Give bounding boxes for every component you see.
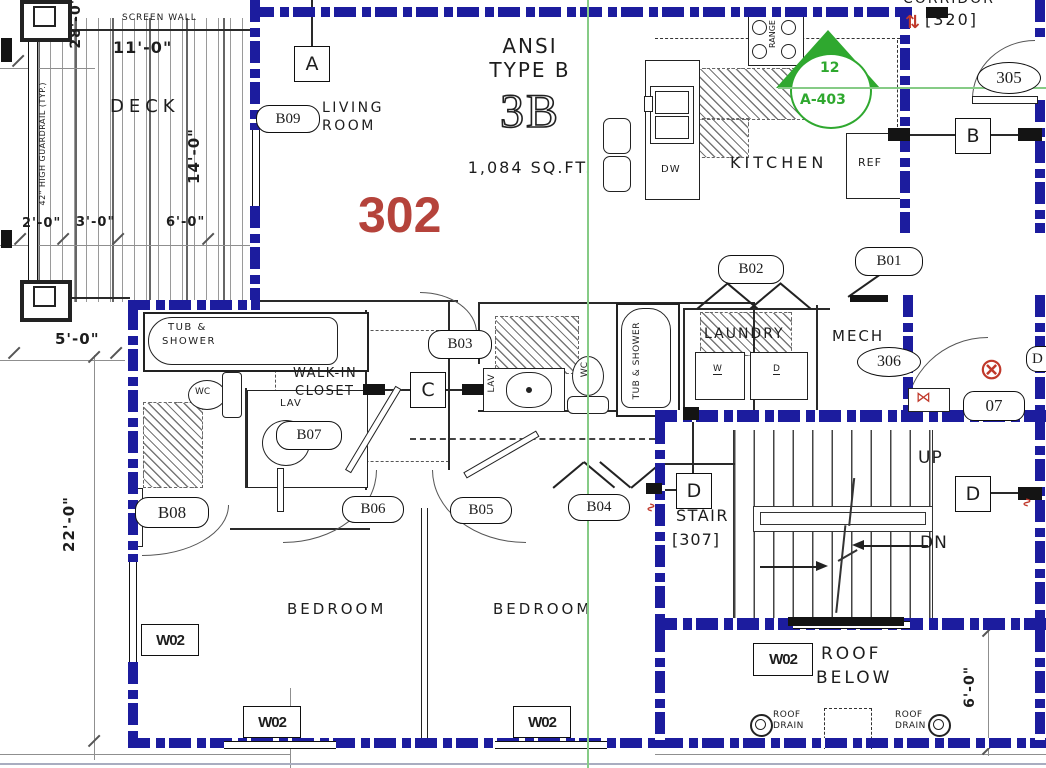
dryer-box <box>750 352 808 400</box>
stair-tag: [307] <box>672 530 720 549</box>
wall-stair-left <box>655 422 665 630</box>
stool <box>603 118 631 154</box>
unit-area: 1,084 SQ.FT. <box>450 158 610 177</box>
kitchen-label: KITCHEN <box>730 153 827 172</box>
tag-text: W02 <box>528 714 556 731</box>
grid-marker-a: A <box>294 46 330 82</box>
bath2-floor-hatch <box>495 316 579 374</box>
dim-tick <box>12 55 24 67</box>
roof-drain-symbol-inner <box>933 719 944 730</box>
dim-6-0-roof: 6'-0" <box>962 666 978 708</box>
lav-label: LAV <box>487 374 497 392</box>
roof-below-label-1: ROOF <box>821 644 881 664</box>
stair-arrow-left <box>852 540 864 550</box>
roof-drain-label-1: ROOF <box>773 710 801 720</box>
dim-6-0: 6'-0" <box>166 215 205 230</box>
wall-deck-right-lower <box>250 206 260 304</box>
door-tag-b04: B04 <box>568 494 630 521</box>
tag-text: D <box>1032 351 1043 368</box>
window-tag-w02-bottom2: W02 <box>513 706 571 738</box>
grid-b-line <box>989 134 1018 136</box>
section-sheet: A-403 <box>800 92 846 108</box>
range-burner <box>781 44 796 59</box>
ansi-line1: ANSI <box>460 34 600 58</box>
stair-arrow-line <box>862 545 928 547</box>
cabinet-dashed-line <box>897 40 898 132</box>
door-tag-b05: B05 <box>450 497 512 524</box>
wall-squiggle-symbol: ∿ <box>644 502 659 513</box>
floor-plan: SCREEN WALL 11'-0" DECK 14'-0" 42" HIGH … <box>0 0 1046 768</box>
window-tag-w02-left: W02 <box>141 624 199 656</box>
laundry-left-wall <box>683 308 685 416</box>
roof-below-label-2: BELOW <box>816 668 892 688</box>
grid-d-line <box>692 420 694 474</box>
roof-drain-label-2: DRAIN <box>895 721 926 731</box>
corridor-door-number: 305 <box>996 68 1022 88</box>
window-bottom-bedroom2 <box>495 741 607 749</box>
column-top-core <box>33 6 56 27</box>
deck-label: DECK <box>110 96 180 117</box>
door-tag-partial-right: D <box>1026 346 1046 372</box>
dryer-label: D <box>773 364 780 375</box>
wall-joint-marker <box>363 384 385 395</box>
tag-text: B06 <box>360 501 385 518</box>
door-tag-07: 07 <box>963 391 1025 421</box>
grid-d-line <box>989 492 1018 494</box>
deck-boards <box>38 18 252 302</box>
door-tag-b03: B03 <box>428 330 492 359</box>
grid-a-letter: A <box>306 53 319 75</box>
grid-b-letter: B <box>966 125 979 147</box>
dim-line-vertical <box>94 355 95 760</box>
tag-text: B03 <box>447 336 472 353</box>
corridor-door-leaf <box>972 96 1038 104</box>
laundry-mech-wall <box>816 305 818 415</box>
wall-top <box>252 7 912 17</box>
tag-text: W02 <box>769 651 797 668</box>
wall-left-upper <box>128 308 138 562</box>
wall-right-upper <box>1035 100 1045 233</box>
wall-joint-marker <box>1018 128 1042 141</box>
stair-dn-label: DN <box>920 533 948 553</box>
wall-right-lower <box>1035 630 1045 748</box>
window-left-bedroom <box>129 562 137 662</box>
dim-14-0: 14'-0" <box>185 128 203 184</box>
b04-door-line <box>552 461 584 488</box>
grid-marker-d-stair: D <box>676 473 712 509</box>
tag-text: B02 <box>738 261 763 278</box>
section-number: 12 <box>820 60 839 76</box>
sink-bowl <box>655 116 689 139</box>
range-burner <box>752 44 767 59</box>
lav-label: LAV <box>280 398 302 409</box>
dim-tick <box>110 347 122 359</box>
range-burner <box>781 20 796 35</box>
tag-text: B05 <box>468 502 493 519</box>
grid-d-letter: D <box>687 480 702 502</box>
laundry-label: LAUNDRY <box>704 326 785 342</box>
door-tag-b06: B06 <box>342 496 404 523</box>
toilet-tank <box>222 372 242 418</box>
door-threshold <box>850 295 888 302</box>
wall-joint-marker <box>888 128 910 141</box>
revision-symbol: ⇅ <box>905 12 920 33</box>
dim-tick <box>14 233 26 245</box>
tub-label-2: SHOWER <box>162 336 216 347</box>
wall-joint-marker <box>926 7 948 18</box>
valve-symbol: ⋈ <box>916 388 931 406</box>
dim-line <box>0 754 290 755</box>
bathtub2 <box>621 308 671 408</box>
tag-text: W02 <box>258 714 286 731</box>
dim-5-0: 5'-0" <box>55 330 100 348</box>
dim-line <box>0 360 125 361</box>
wall-joint-marker <box>683 407 699 420</box>
grid-marker-d-right: D <box>955 476 991 512</box>
door-tag-b01: B01 <box>855 247 923 276</box>
bedroom1-label: BEDROOM <box>287 600 386 618</box>
roof-drain-label-2: DRAIN <box>773 721 804 731</box>
tag-text: B09 <box>275 111 300 128</box>
ansi-line2: TYPE B <box>460 58 600 82</box>
mech-label: MECH <box>832 327 884 345</box>
window-tag-w02-bottom1: W02 <box>243 706 301 738</box>
tub-label-vertical: TUB & SHOWER <box>632 322 642 399</box>
washer-box <box>695 352 745 400</box>
walkin-label-1: WALK-IN <box>293 366 357 381</box>
dim-11-0: 11'-0" <box>113 38 172 57</box>
dim-2-0: 2'-0" <box>22 216 61 231</box>
tag-text: B08 <box>158 503 186 523</box>
stair-arrow-line <box>760 566 818 568</box>
window-tag-w02-roof: W02 <box>753 643 813 676</box>
stair-bottom-tread <box>788 617 904 626</box>
mech-room-tag: 306 <box>857 347 921 377</box>
grid-marker-b: B <box>955 118 991 154</box>
b04-door-line <box>599 461 631 488</box>
range-label: RANGE <box>768 20 777 48</box>
door-tag-b08: B08 <box>135 497 209 528</box>
bifold-door-line <box>749 282 781 309</box>
grid-b-line <box>910 134 955 136</box>
range-burner <box>752 20 767 35</box>
stair-inner-wall <box>663 463 735 465</box>
wall-roof-left <box>655 630 665 748</box>
dim-line <box>0 68 95 69</box>
window-bottom-bedroom1 <box>224 741 336 749</box>
wall-joint-marker <box>462 384 484 395</box>
dim-tick <box>8 347 20 359</box>
mech-room-number: 306 <box>877 353 901 371</box>
tag-text: W02 <box>156 632 184 649</box>
green-reference-vline <box>587 0 589 768</box>
wall-joint-marker <box>646 483 662 494</box>
living-room-label-2: ROOM <box>322 118 376 134</box>
grid-marker-c: C <box>410 372 446 408</box>
washer-label: W <box>713 364 722 375</box>
grid-c-line <box>444 389 464 391</box>
wall-right-top <box>1035 0 1045 40</box>
corridor-label: CORRIDOR <box>903 0 995 7</box>
page-edge-line <box>0 763 1046 765</box>
wall-squiggle-symbol: ∿ <box>1020 497 1035 508</box>
dim-22-0: 22'-0" <box>60 496 78 552</box>
walkin-label-2: CLOSET <box>295 384 355 399</box>
keynote-symbol: ⊗ <box>979 355 1004 385</box>
wall-left-lower <box>128 662 138 748</box>
door-tag-b02: B02 <box>718 255 784 284</box>
wc-label: WC <box>195 387 210 397</box>
sink-faucet <box>644 96 653 112</box>
grid-d-letter: D <box>966 483 981 505</box>
door-tag-b09: B09 <box>256 105 320 133</box>
sink-bowl <box>655 91 689 114</box>
dishwasher-label: DW <box>661 164 681 175</box>
stair-arrow-right <box>816 561 828 571</box>
stair-up-label: UP <box>918 448 943 468</box>
bath1-floor-hatch <box>143 402 203 488</box>
wall-joint-marker <box>1 38 12 62</box>
bath2-door-arc <box>420 292 477 333</box>
refrigerator-label: REF <box>858 156 882 169</box>
tag-text: B07 <box>296 427 321 444</box>
corridor-door-tag: 305 <box>977 62 1041 94</box>
column-bottom-core <box>33 286 56 307</box>
wall-joint-marker <box>1 230 12 248</box>
deck-guardrail <box>28 18 38 302</box>
bifold-door-line <box>696 282 728 309</box>
roof-drain-label-1: ROOF <box>895 710 923 720</box>
dim-line <box>0 245 260 246</box>
tag-text: B04 <box>586 499 611 516</box>
deck-door-window <box>252 130 260 206</box>
bedroom-divider-wall <box>421 508 428 740</box>
tag-text: B01 <box>876 253 901 270</box>
kitchen-counter-hatch <box>697 118 749 158</box>
door-tag-b07: B07 <box>276 421 342 450</box>
guardrail-note: 42" HIGH GUARDRAIL (TYP.) <box>38 82 47 205</box>
unit-number: 302 <box>358 186 441 244</box>
dim-3-0: 3'-0" <box>76 215 115 230</box>
stair-landing-inner <box>760 512 926 525</box>
tag-text: 07 <box>986 396 1003 416</box>
lav-drain <box>526 387 532 393</box>
grid-c-letter: C <box>421 379 434 401</box>
wall-corridor-left <box>900 7 910 233</box>
living-room-label-1: LIVING <box>322 100 384 116</box>
bedroom2-label: BEDROOM <box>493 600 592 618</box>
roof-drain-symbol-inner <box>755 719 766 730</box>
unit-type-code: 3B <box>460 84 600 139</box>
bifold-door-line <box>779 282 811 309</box>
wall-mid-left <box>128 300 260 310</box>
screen-wall-note: SCREEN WALL <box>122 13 197 23</box>
tub-label-1: TUB & <box>168 322 207 333</box>
